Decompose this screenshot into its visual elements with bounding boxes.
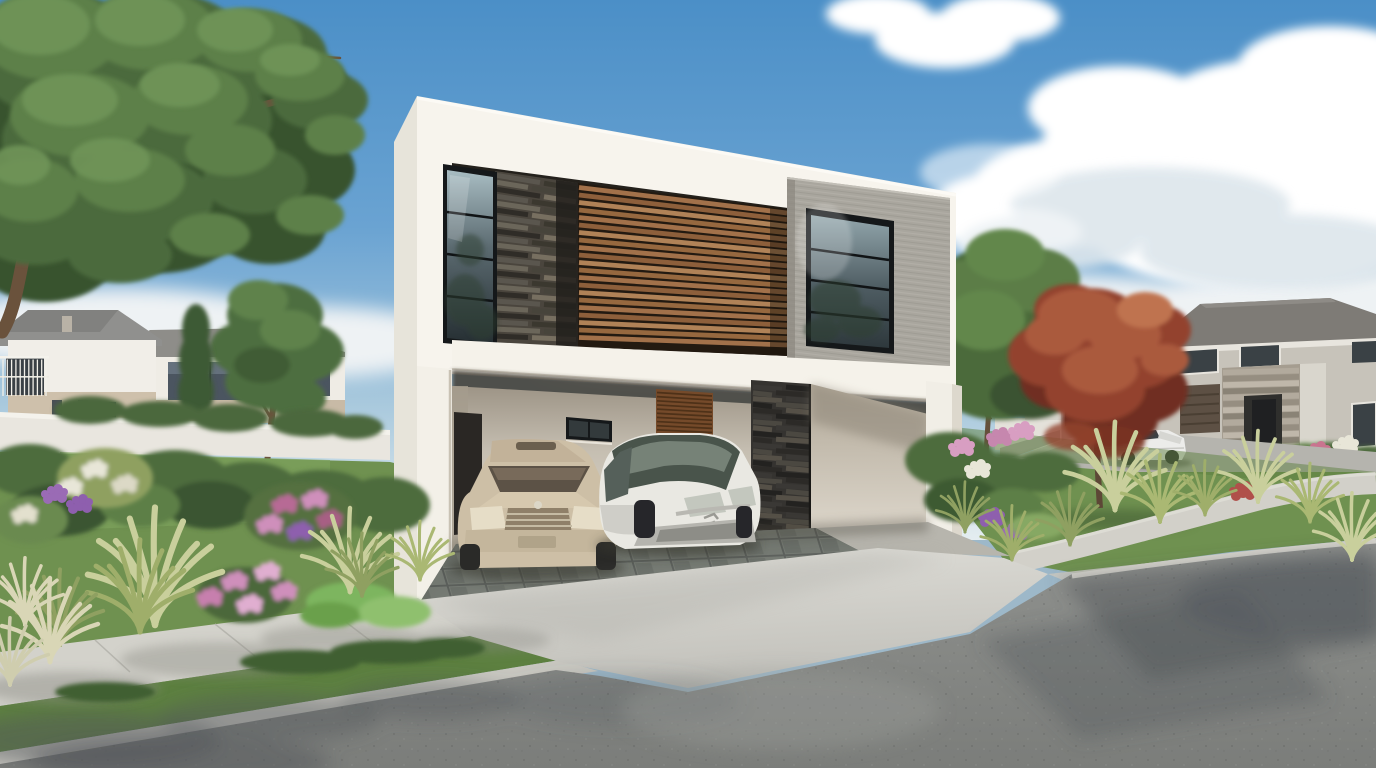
glass-sky-reflection <box>796 204 852 280</box>
concrete-frame-volume <box>787 177 950 377</box>
upper-window-left <box>443 164 498 348</box>
white-minivan <box>596 433 761 557</box>
house-side-wall <box>394 96 417 616</box>
upper-window-right <box>796 204 894 354</box>
stone-panel-dark-edge <box>556 180 578 348</box>
street-sun-patch <box>620 670 940 750</box>
sedan-headlight-left <box>470 506 506 530</box>
conifer <box>178 304 214 418</box>
scene-svg <box>0 0 1376 768</box>
minivan-wheel-right <box>736 506 752 538</box>
sedan-emblem <box>534 501 542 509</box>
concrete-left-shade <box>787 177 795 373</box>
minivan-wheel-left <box>634 500 655 538</box>
sedan-wheel-left <box>460 544 480 570</box>
rendering-canvas <box>0 0 1376 768</box>
left-house-dormer <box>62 316 72 332</box>
windshield-reflection <box>492 468 586 480</box>
slat-edge-shadow <box>770 207 788 356</box>
sedan-plate <box>518 536 556 548</box>
portico-pilaster <box>1300 363 1326 452</box>
balcony-railing <box>0 356 49 396</box>
sedan-sunroof <box>516 442 556 450</box>
wood-slat-screen <box>578 183 788 356</box>
